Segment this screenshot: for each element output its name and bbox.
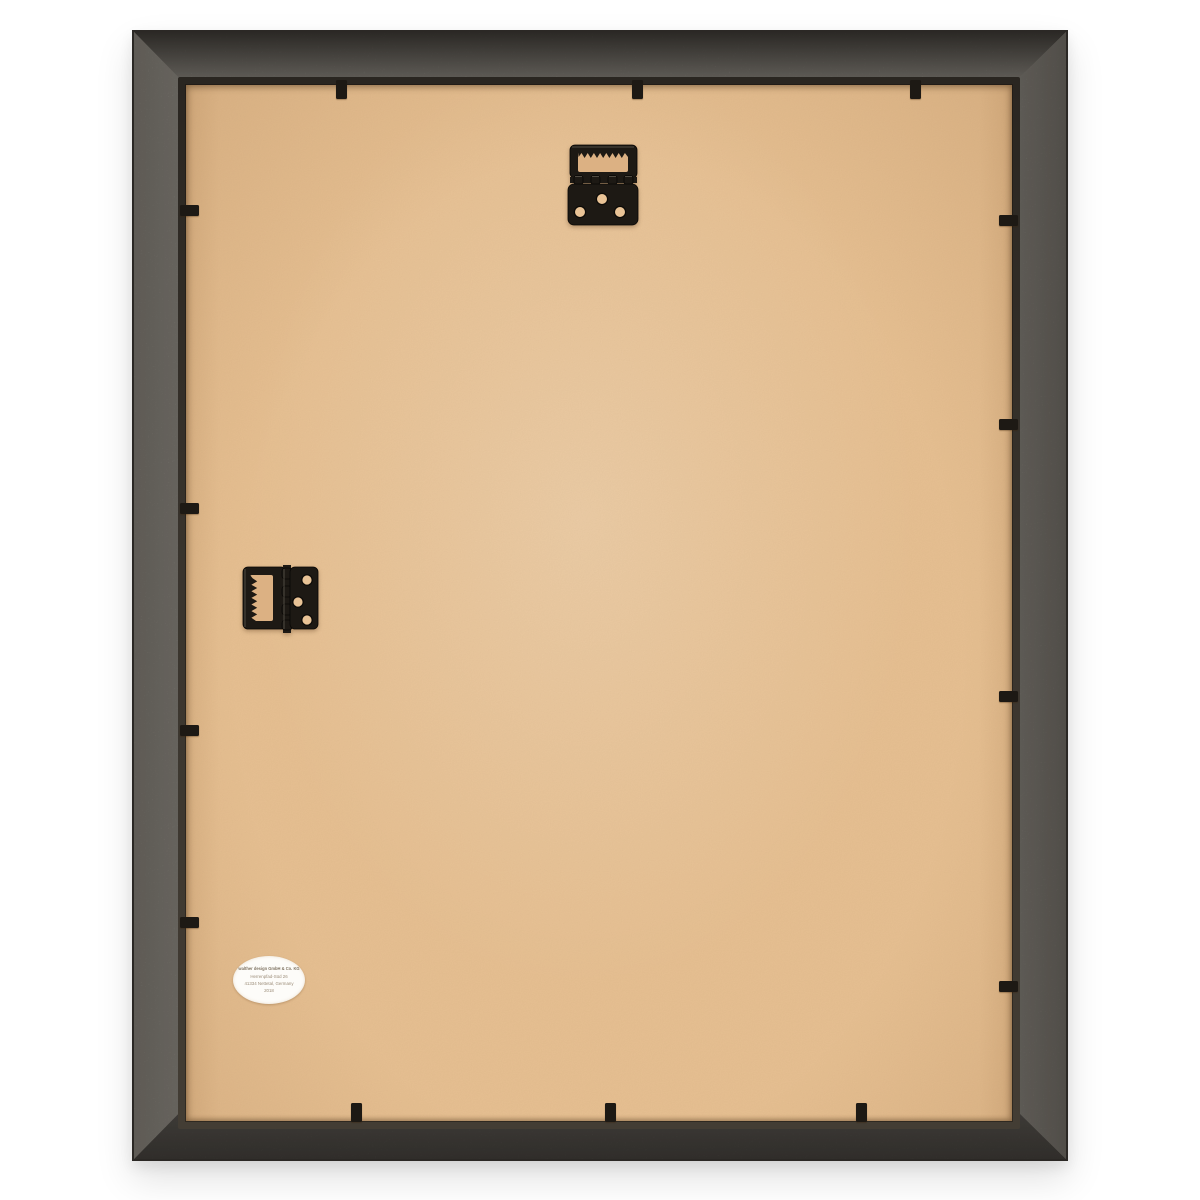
- flexi-clip-top: [632, 80, 643, 99]
- photo-canvas: walther design GmbH & Co. KG Herrenpfad-…: [0, 0, 1200, 1200]
- flexi-clip-top: [336, 80, 347, 99]
- flexi-clip-right: [999, 691, 1018, 702]
- flexi-clip-top: [910, 80, 921, 99]
- flexi-clip-right: [999, 981, 1018, 992]
- manufacturer-sticker: walther design GmbH & Co. KG Herrenpfad-…: [233, 956, 305, 1004]
- flexi-clip-bottom: [351, 1103, 362, 1122]
- flexi-clip-left: [180, 917, 199, 928]
- sticker-street-line: Herrenpfad-Süd 26: [250, 973, 287, 980]
- flexi-clip-left: [180, 205, 199, 216]
- sticker-code-line: 2018: [264, 987, 274, 994]
- flexi-clip-right: [999, 215, 1018, 226]
- flexi-clip-left: [180, 503, 199, 514]
- flexi-clip-bottom: [856, 1103, 867, 1122]
- flexi-clip-left: [180, 725, 199, 736]
- flexi-clip-bottom: [605, 1103, 616, 1122]
- sawtooth-hinge-hanger-rotated-icon: [240, 562, 320, 636]
- sticker-city-line: 41334 Nettetal, Germany: [244, 980, 293, 987]
- flexi-clip-right: [999, 419, 1018, 430]
- sawtooth-hinge-hanger-icon: [562, 140, 642, 228]
